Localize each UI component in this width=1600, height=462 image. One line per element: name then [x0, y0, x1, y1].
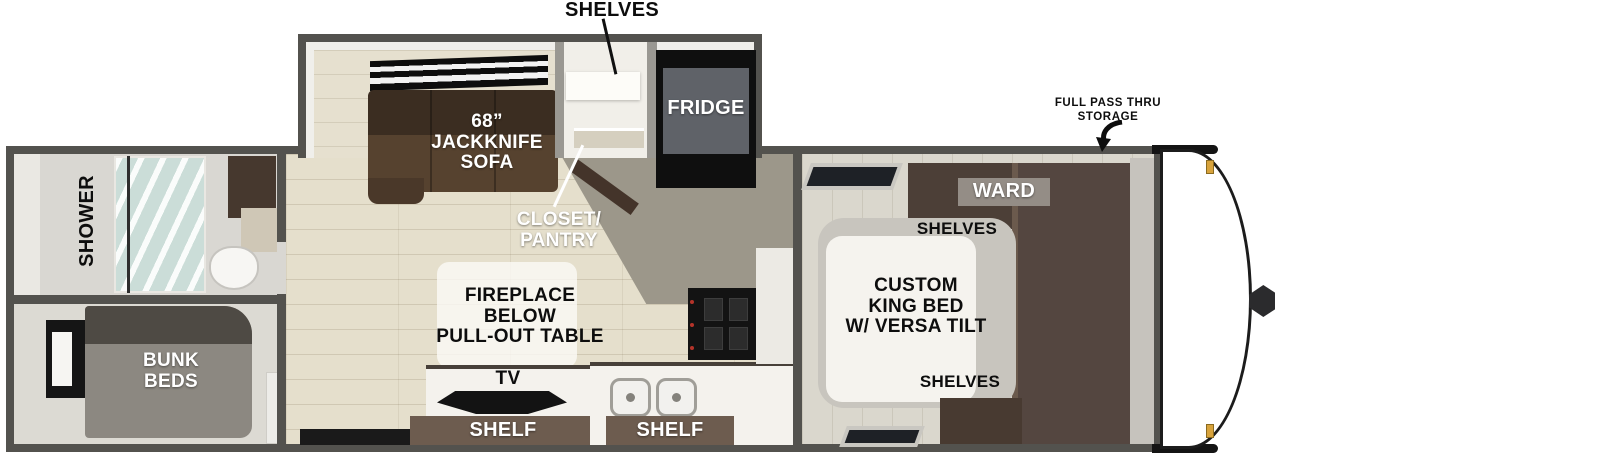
hitch-coupler [1249, 285, 1275, 317]
king-bed-label: CUSTOM KING BED W/ VERSA TILT [820, 276, 1012, 338]
shelf-right: SHELF [606, 416, 734, 445]
fireplace-label-line: PULL-OUT TABLE [420, 327, 620, 348]
bunk-beds-label: BUNK BEDS [101, 351, 241, 392]
knob-icon [690, 300, 694, 304]
tv-label-text: TV [426, 369, 590, 390]
roof-vent-glass [845, 430, 920, 443]
closet-shelf [566, 72, 640, 100]
cap-clip-bottom [1206, 424, 1214, 438]
roof-vent-icon [801, 163, 903, 190]
roof-vent-glass [807, 167, 898, 186]
front-wall-strip [1130, 158, 1154, 444]
fireplace-label-line: FIREPLACE [420, 286, 620, 307]
burner-icon [704, 327, 723, 350]
burner-icon [729, 327, 748, 350]
bunk-window-pane [52, 332, 72, 386]
knob-icon [690, 323, 694, 327]
cooktop-knobs [690, 300, 695, 350]
bedroom-wall [793, 154, 802, 444]
bedroom-shelves-bottom-text: SHELVES [895, 373, 1025, 391]
sofa-label-line: 68” [397, 112, 577, 133]
bedroom-shelf-cabinet [940, 398, 1022, 444]
wardrobe-label: WARD [958, 181, 1050, 203]
bathroom-wall [277, 154, 286, 242]
fridge-label-text: FRIDGE [663, 98, 749, 120]
slideout-shelves-label: SHELVES [532, 0, 692, 22]
bedroom-shelves-bottom-label: SHELVES [895, 373, 1025, 391]
bunk-room-wall [277, 294, 286, 444]
king-bed-label-line: W/ VERSA TILT [820, 317, 1012, 338]
burner-icon [704, 298, 723, 321]
burner-icon [729, 298, 748, 321]
entry-step [300, 429, 412, 445]
sink-basin-right [656, 378, 697, 417]
king-bed-label-line: CUSTOM [820, 276, 1012, 297]
shelf-left-label: SHELF [469, 420, 536, 442]
sofa-label-line: JACKKNIFE [397, 133, 577, 154]
closet-label-line: CLOSET/ [500, 210, 618, 231]
storage-label-line: FULL PASS THRU [1047, 97, 1169, 111]
cooktop [688, 288, 758, 360]
bedroom-shelves-top-text: SHELVES [892, 220, 1022, 238]
roof-vent-icon [839, 426, 925, 447]
shower-label-text: SHOWER [77, 175, 99, 267]
tv-label: TV [426, 369, 590, 390]
cap-clip-top [1206, 160, 1214, 174]
bunk-beds-headboard [85, 306, 252, 344]
front-cap [1160, 149, 1252, 449]
fireplace-label: FIREPLACE BELOW PULL-OUT TABLE [420, 286, 620, 348]
closet-label-line: PANTRY [500, 231, 618, 252]
rv-floorplan: SHELF SHELF SHELVES 68” JACKKNIFE [0, 0, 1600, 462]
fridge-label: FRIDGE [663, 98, 749, 120]
bunk-label-line: BEDS [101, 372, 241, 393]
knob-icon [690, 346, 694, 350]
sink-basin-left [610, 378, 651, 417]
storage-arrow-icon [1094, 120, 1126, 154]
sofa-window [370, 55, 548, 91]
sofa-label-line: SOFA [397, 153, 577, 174]
closet-pantry-label: CLOSET/ PANTRY [500, 210, 618, 251]
sofa-armrest [368, 178, 424, 204]
sofa-label: 68” JACKKNIFE SOFA [397, 112, 577, 174]
bedroom-shelves-top-label: SHELVES [892, 220, 1022, 238]
king-bed-label-line: KING BED [820, 297, 1012, 318]
shower-label: SHOWER [23, 156, 153, 286]
toilet [209, 246, 259, 290]
bathroom-doorway [277, 242, 286, 294]
wardrobe-label-text: WARD [958, 181, 1050, 203]
slideout-shelves-text: SHELVES [532, 0, 692, 22]
counter-extension [756, 248, 793, 364]
shelf-right-label: SHELF [636, 420, 703, 442]
sink-drain-icon [626, 393, 635, 402]
bunk-label-line: BUNK [101, 351, 241, 372]
sink-drain-icon [672, 393, 681, 402]
bathroom-vanity [241, 208, 277, 252]
shelf-left: SHELF [410, 416, 596, 445]
fireplace-label-line: BELOW [420, 307, 620, 328]
